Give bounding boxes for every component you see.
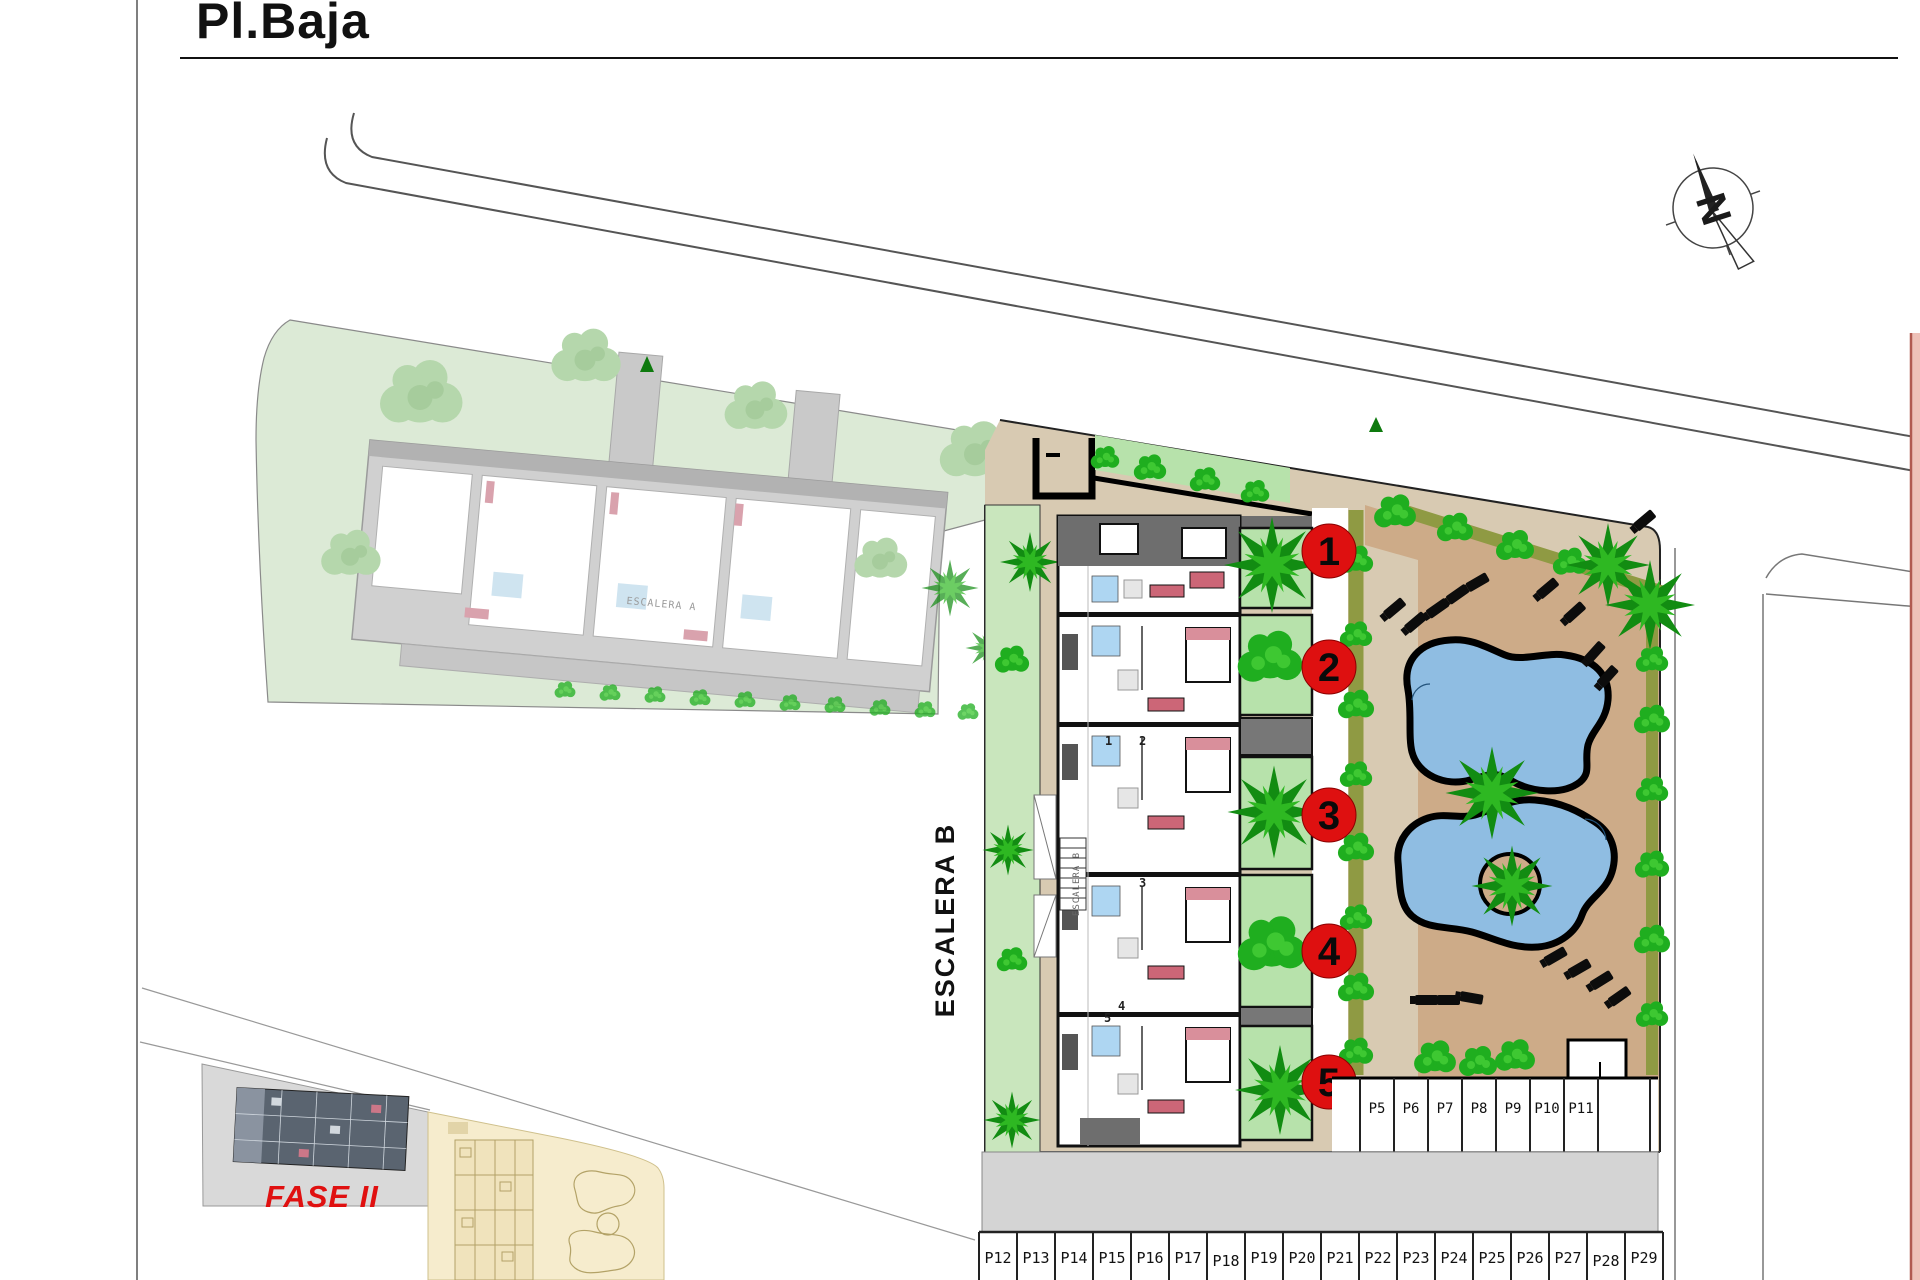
parking-stall-label: P18 [1212, 1252, 1239, 1270]
palm-tree-icon [1472, 846, 1553, 927]
west-garden-strip [985, 505, 1040, 1152]
unit-marker-2-label: 2 [1318, 646, 1340, 690]
fase-1-mini-building [455, 1140, 533, 1280]
stair-core: ESCALERA B [1060, 838, 1086, 916]
access-road [982, 1152, 1658, 1232]
parking-stall-label: P20 [1288, 1249, 1315, 1267]
parking-stall-label: P22 [1364, 1249, 1391, 1267]
parking-stall-label: P28 [1592, 1252, 1619, 1270]
parking-stall-label: P21 [1326, 1249, 1353, 1267]
fase-2-inset: FASE II [202, 1064, 430, 1214]
parking-stall-label: P27 [1554, 1249, 1581, 1267]
site-plan-canvas: Pl.Baja N ESCALERA A [0, 0, 1920, 1280]
north-compass: N [1646, 136, 1782, 287]
unit-number: 1 [1105, 734, 1112, 748]
parking-stall-label: P26 [1516, 1249, 1543, 1267]
parking-stall-label: P19 [1250, 1249, 1277, 1267]
palm-tree-icon [1605, 560, 1695, 650]
palm-tree-icon [1000, 532, 1060, 592]
parking-stall-label: P23 [1402, 1249, 1429, 1267]
parking-stall-label: P7 [1437, 1101, 1454, 1117]
fase-2-label: FASE II [265, 1179, 379, 1214]
terrace-block [1240, 718, 1312, 755]
pool-north [1407, 640, 1608, 791]
unit-marker-3-label: 3 [1318, 794, 1340, 838]
unit-number: 3 [1139, 876, 1146, 890]
escalera-a-site: ESCALERA A [256, 320, 1012, 720]
parking-stall-label: P6 [1403, 1101, 1420, 1117]
parking-stall-label: P10 [1534, 1101, 1559, 1117]
ramps [1034, 795, 1056, 957]
pink-strip [1911, 333, 1920, 1280]
road-band [982, 1152, 1658, 1232]
palm-tree-icon [983, 825, 1034, 876]
parking-stall-label: P8 [1471, 1101, 1488, 1117]
parking-stall-label: P17 [1174, 1249, 1201, 1267]
parking-stall-label: P13 [1022, 1249, 1049, 1267]
fase-1-inset [428, 1112, 664, 1280]
unit-number: 2 [1139, 734, 1146, 748]
parking-stall-label: P11 [1568, 1101, 1593, 1117]
pool-house [1568, 1040, 1626, 1078]
palm-tree-icon [984, 1092, 1041, 1149]
unit-number: 4 [1118, 999, 1125, 1013]
palm-tree-icon [1446, 747, 1539, 840]
side-street-upper [1766, 554, 1920, 578]
unit-number: 5 [1104, 1011, 1111, 1025]
side-street-lower [1766, 594, 1920, 607]
tree-marker-icon [1369, 417, 1383, 432]
palm-tree-icon [922, 560, 979, 617]
neighbor-parcel-strip [1911, 333, 1920, 1280]
parking-stall-label: P29 [1630, 1249, 1657, 1267]
page-title: Pl.Baja [196, 0, 370, 49]
parking-stall-label: P16 [1136, 1249, 1163, 1267]
parking-side-row: P5 P6 P7 P8 P9 P10 P11 [1332, 1078, 1658, 1152]
escalera-b-label: ESCALERA B [930, 823, 960, 1018]
faded-tree-icon [551, 329, 620, 382]
parking-stall-label: P5 [1369, 1101, 1386, 1117]
unit-marker-4-label: 4 [1318, 930, 1341, 974]
terrace-block [1240, 1007, 1312, 1026]
faded-tree-icon [725, 381, 788, 429]
parking-stall-label: P24 [1440, 1249, 1467, 1267]
stair-core-label: ESCALERA B [1072, 852, 1082, 916]
unit-marker-1-label: 1 [1318, 530, 1340, 574]
parking-stall-label: P14 [1060, 1249, 1087, 1267]
parking-stall-label: P12 [984, 1249, 1011, 1267]
parking-stall-label: P9 [1505, 1101, 1522, 1117]
fase-2-mini-building [233, 1088, 409, 1171]
site-plan-page: Pl.Baja N ESCALERA A [0, 0, 1920, 1280]
parking-bottom-row: P12 P13 P14 P15 P16 P17 P18 P19 P20 P21 … [979, 1232, 1663, 1280]
compass-north-label: N [1687, 187, 1741, 230]
parking-stall-label: P25 [1478, 1249, 1505, 1267]
parking-stall-label: P15 [1098, 1249, 1125, 1267]
